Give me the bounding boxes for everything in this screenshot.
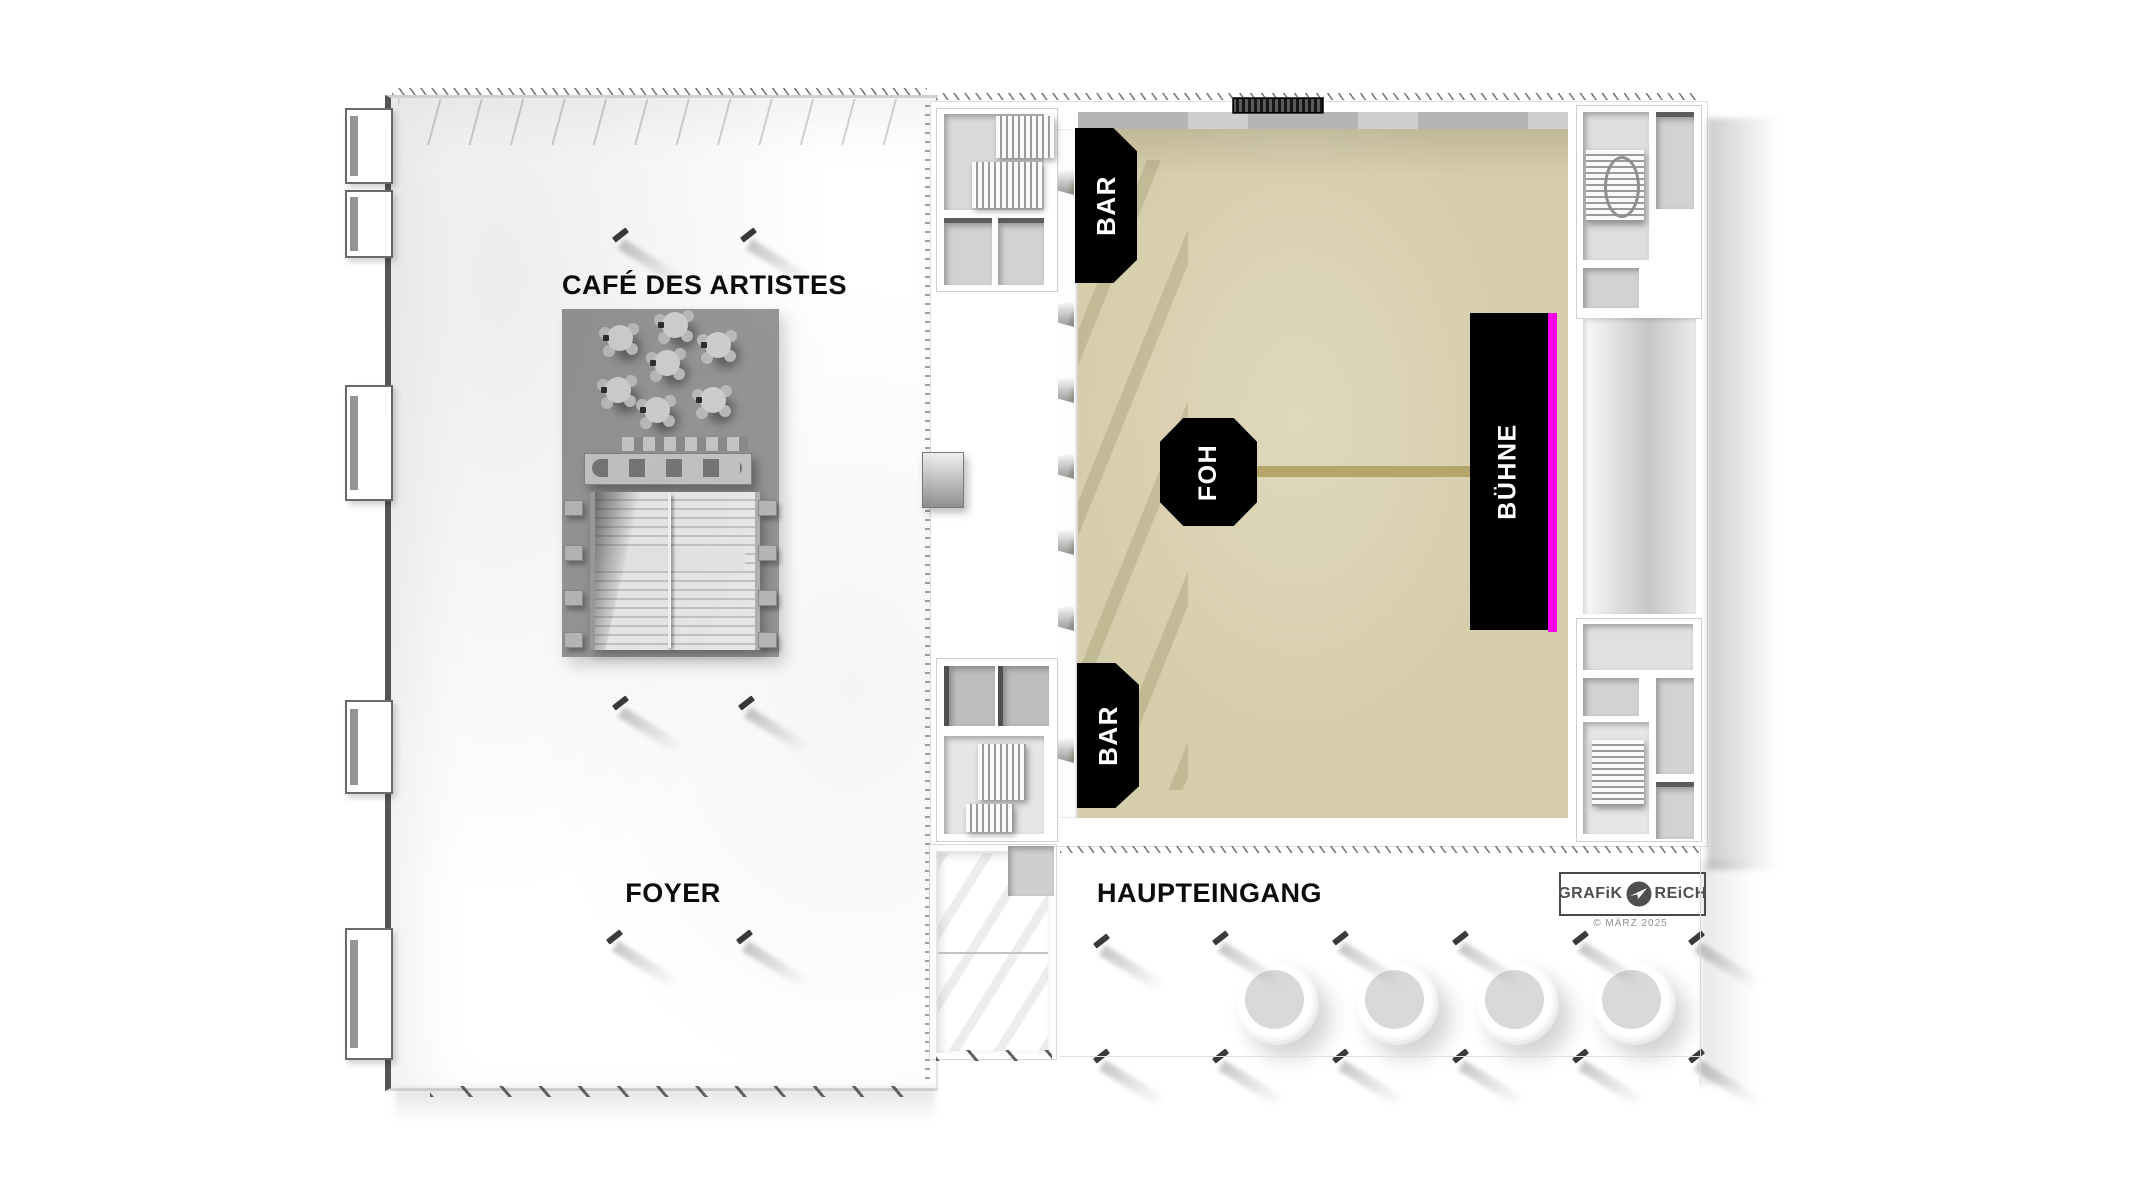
cafe-staircase-center-rail [668,494,671,648]
corridor-bottom-hatching [936,1050,1052,1061]
stair-curve-rail [1604,156,1640,218]
cafe-table [705,332,731,358]
room-top-right [1656,112,1694,209]
entrance-label: HAUPTEINGANG [1097,878,1322,909]
ventilation-grille [1232,97,1324,114]
room-bottom-right-top [1583,624,1693,670]
bar-bottom-label: BAR [1077,663,1139,808]
storage-room [944,666,995,726]
cafe-side-chair [758,590,777,606]
cafe-table [654,350,680,376]
room-bottom-right-low [1656,782,1694,839]
building-shadow-plaza-right [1701,860,1756,1085]
copyright-text: © MÄRZ 2025 [1559,918,1702,929]
plaza-ground-line [1060,1056,1700,1057]
floorplan-canvas: CAFÉ DES ARTISTES FOYER [0,0,2133,1200]
stairs-bottom-left-run [966,804,1014,832]
hall-door-flap [1058,168,1074,195]
planter [1475,961,1559,1045]
planter [1355,961,1439,1045]
cafe-side-chair [758,500,777,516]
foh-label: FOH [1160,418,1257,526]
cafe-counter-back-shelf [622,437,748,451]
hall-door-flap [1058,736,1074,763]
wc-room [944,218,992,285]
annex-room [345,700,393,794]
wc-room [998,218,1044,285]
cafe-side-chair [564,500,583,516]
cafe-table [605,377,631,403]
entrance-corridor-notch [1008,846,1054,896]
stairs-bottom-right [1592,740,1644,806]
bar-top-label: BAR [1075,128,1137,283]
logo-text-grafik: GRAFiK [1558,885,1622,903]
annex-room [345,190,393,258]
cafe-table [662,312,688,338]
room-bottom-right-small [1583,678,1639,716]
cafe-side-chair [758,632,777,648]
annex-room [345,385,393,501]
cafe-side-chair [564,545,583,561]
stage-label-text: BÜHNE [1494,423,1523,519]
entrance-corridor-divider [938,952,1048,954]
backstage-room [1583,318,1696,614]
stairs-top-left-lower [972,162,1042,208]
stage-block: BÜHNE [1470,313,1556,630]
cafe-side-chair [758,545,777,561]
logo-box: GRAFiK REiCH [1559,872,1706,916]
bar-top-label-text: BAR [1091,175,1122,236]
annex-room [345,108,393,184]
hall-door-flap [1058,376,1074,403]
stairs-top-left-upper [996,116,1054,158]
corridor-counter [922,452,964,508]
cafe-table [607,325,633,351]
building-shadow-right [1707,118,1779,870]
foyer-roof-beams [398,99,920,145]
room-bottom-right-mid [1656,678,1694,774]
cafe-counter-stools [592,459,742,477]
cafe-side-chair [564,590,583,606]
hall-door-flap [1058,300,1074,327]
hall-top-wall [1078,112,1568,129]
cafe-label: CAFÉ DES ARTISTES [562,270,782,301]
foyer-top-wall-hatching [392,88,927,95]
annex-room [345,928,393,1060]
hall-bottom-wall-hatching [1060,846,1700,853]
planter [1235,961,1319,1045]
cafe-table [700,387,726,413]
foh-stage-line [1250,466,1472,477]
cafe-side-chair [564,632,583,648]
foh-label-text: FOH [1194,443,1223,500]
storage-room [998,666,1049,726]
stairs-bottom-left [978,744,1026,800]
hall-door-flap [1058,604,1074,631]
cafe-table [644,397,670,423]
hall-door-flap [1058,528,1074,555]
logo-text-reich: REiCH [1655,885,1707,903]
hall-door-flap [1058,452,1074,479]
stage-front-accent [1548,313,1557,632]
bar-bottom-label-text: BAR [1093,705,1124,766]
room-top-right-small [1583,268,1639,308]
foyer-label: FOYER [563,878,783,909]
building-shadow-bottom [395,1088,935,1124]
logo-plane-icon [1626,881,1652,907]
